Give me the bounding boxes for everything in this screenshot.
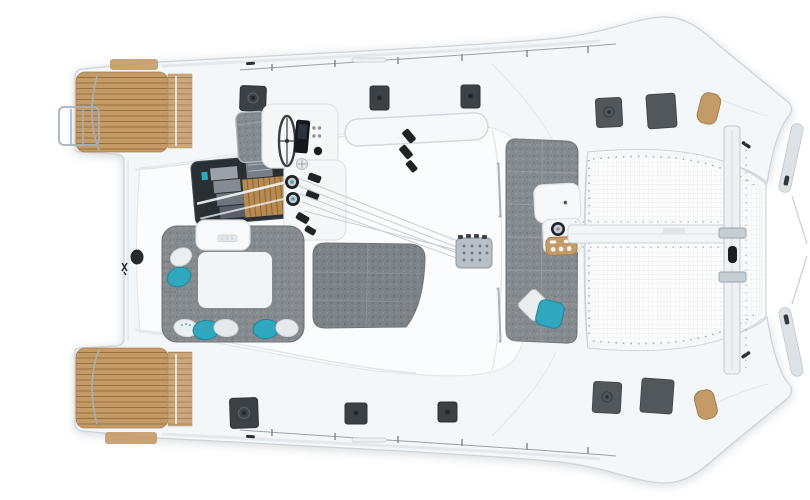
compass bbox=[297, 159, 308, 170]
stern-fitting bbox=[131, 250, 144, 265]
forward-winch bbox=[551, 222, 565, 236]
port-bow-locker-2 bbox=[646, 93, 677, 129]
starboard-bow-locker-1 bbox=[592, 381, 622, 413]
deck-plan-svg bbox=[0, 0, 810, 500]
bridle-plate-lower bbox=[719, 272, 746, 282]
bridle-plate-upper bbox=[719, 228, 746, 238]
cockpit-footwell bbox=[198, 252, 272, 308]
gate-plate bbox=[352, 438, 386, 442]
catamaran-deck-plan bbox=[0, 0, 810, 500]
mast-base-plate bbox=[456, 234, 492, 268]
bridle-line-port bbox=[792, 196, 807, 244]
instrument-panel bbox=[294, 120, 311, 154]
bow-details bbox=[778, 123, 807, 378]
helm-knob bbox=[314, 147, 322, 155]
companionway-step bbox=[210, 166, 238, 180]
bridle-line-starboard bbox=[792, 256, 807, 304]
starboard-bow-locker-2 bbox=[640, 378, 674, 414]
port-transom-steps bbox=[168, 74, 192, 148]
starboard-engine-hatch bbox=[229, 398, 258, 429]
port-bow-nose bbox=[778, 123, 804, 194]
central-beam bbox=[568, 222, 740, 247]
starboard-bow-nose bbox=[778, 307, 804, 378]
helm-winch-2 bbox=[286, 192, 300, 206]
gate-plate bbox=[352, 58, 386, 62]
port-bow-locker-1 bbox=[595, 97, 622, 127]
helm-winch-1 bbox=[285, 175, 299, 189]
port-engine-hatch bbox=[240, 86, 267, 112]
beam-label-patch bbox=[663, 228, 685, 235]
cockpit-table bbox=[196, 220, 250, 250]
sunpad bbox=[313, 243, 425, 328]
anchor-roller bbox=[728, 246, 737, 263]
starboard-transom-steps bbox=[168, 352, 192, 426]
galley-teal-accent bbox=[201, 172, 208, 180]
